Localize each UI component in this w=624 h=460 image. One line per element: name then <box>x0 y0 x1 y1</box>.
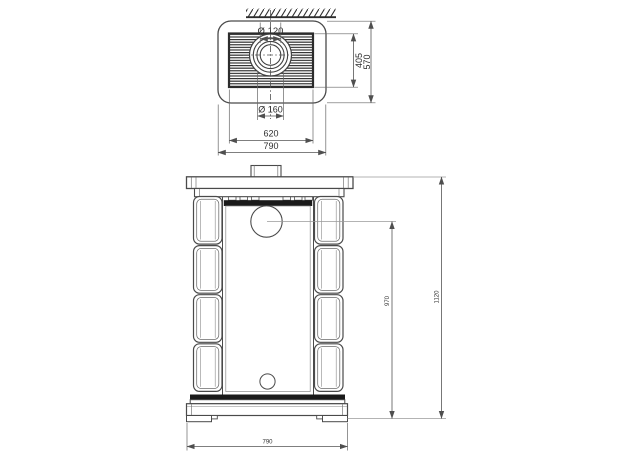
flue-center-height-label: 970 <box>385 295 391 306</box>
tile-column-left <box>194 197 223 392</box>
front-view: 970 1120 790 <box>187 166 447 451</box>
wall-hatch <box>246 9 336 18</box>
base-width-label: 790 <box>262 440 273 446</box>
panel-top-band <box>224 200 312 206</box>
plinth-base <box>187 395 348 422</box>
ash-port-circle <box>260 374 275 389</box>
technical-drawing-page: Ø 120 Ø 160 620 790 405 <box>0 0 624 460</box>
panel-clips <box>229 197 313 200</box>
dim-overall-height: 1120 <box>435 177 442 419</box>
dim-flue-center-height: 970 <box>385 222 392 419</box>
firebox-panel <box>223 197 314 395</box>
base-shadow-band <box>190 395 345 400</box>
top-plate <box>187 177 354 197</box>
overall-depth-label: 570 <box>362 54 372 69</box>
foot-left <box>187 416 218 422</box>
flue-inner-diameter-label: Ø 120 <box>258 26 284 37</box>
grille-width-label: 620 <box>263 129 278 139</box>
flue-outer-diameter-label: Ø 160 <box>258 105 283 115</box>
foot-right <box>317 416 348 422</box>
top-view: Ø 120 Ø 160 620 790 405 <box>218 9 376 156</box>
overall-height-label: 1120 <box>435 290 441 304</box>
dim-overall-depth: 570 <box>327 21 376 103</box>
flue-stub <box>251 166 281 178</box>
tile-column-right <box>315 197 344 392</box>
dim-base-width: 790 <box>187 423 348 451</box>
stove-dimension-drawing: Ø 120 Ø 160 620 790 405 <box>0 0 624 460</box>
overall-width-label: 790 <box>263 141 278 151</box>
